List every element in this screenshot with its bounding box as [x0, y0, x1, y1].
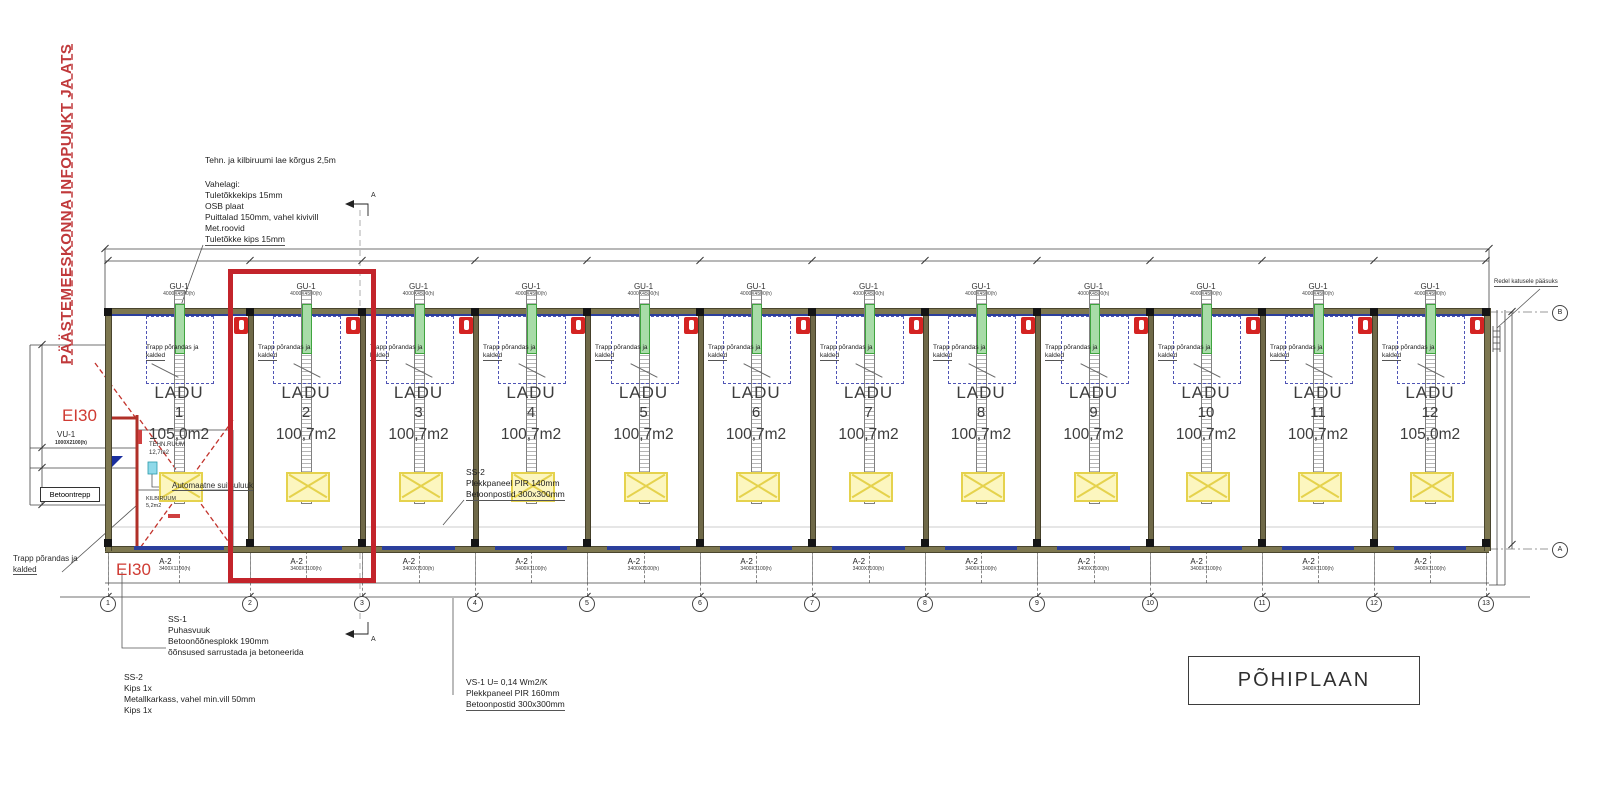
note-vs1-1: Plekkpaneel PIR 160mm — [466, 689, 560, 699]
floor-drain-note: Trapp põrandas ja kalded — [820, 344, 873, 361]
storage-unit-4: GU-1 4000X4500(h) Trapp põrandas ja kald… — [475, 280, 587, 583]
fire-extinguisher-icon — [571, 317, 585, 334]
window-label-a2: A-2 3400X1100(h) — [740, 557, 771, 572]
unit-number: 11 — [1262, 404, 1374, 421]
storage-unit-5: GU-1 4000X4500(h) Trapp põrandas ja kald… — [587, 280, 700, 583]
betoontrepp-label: Betoontrepp — [40, 487, 100, 502]
storage-unit-8: GU-1 4000X4500(h) Trapp põrandas ja kald… — [925, 280, 1037, 583]
unit-number: 7 — [812, 404, 925, 421]
smoke-hatch-icon — [1074, 472, 1118, 502]
note-vs1-2: Betoonpostid 300x300mm — [466, 700, 565, 711]
window-strip — [945, 546, 1017, 550]
kilbiruum-label: KILBIRUUM — [146, 496, 176, 502]
storage-unit-12: GU-1 4000X4500(h) Trapp põrandas ja kald… — [1374, 280, 1486, 583]
column-post — [1370, 308, 1378, 316]
unit-number: 3 — [362, 404, 475, 421]
note-vs1-0: VS-1 U= 0,14 Wm2/K — [466, 678, 548, 688]
window-label-a2: A-2 3400X1100(h) — [965, 557, 996, 572]
unit-name: LADU — [1150, 383, 1262, 403]
unit-number: 8 — [925, 404, 1037, 421]
storage-unit-3: GU-1 4000X4500(h) Trapp põrandas ja kald… — [362, 280, 475, 583]
unit-name: LADU — [700, 383, 812, 403]
fire-rating-ei30-bottom: EI30 — [116, 560, 151, 580]
smoke-hatch-icon — [1410, 472, 1454, 502]
column-post — [104, 539, 112, 547]
note-vahelagi-2: OSB plaat — [205, 202, 244, 212]
column-post — [1146, 308, 1154, 316]
window-strip — [1057, 546, 1129, 550]
tehn-ruum-area: 12,7m2 — [149, 450, 169, 457]
window-label-a2: A-2 3400X1100(h) — [1414, 557, 1445, 572]
window-label-a2: A-2 3400X1100(h) — [515, 557, 546, 572]
column-post — [104, 308, 112, 316]
unit-area: 100,7m2 — [1037, 426, 1150, 444]
storage-unit-7: GU-1 4000X4500(h) Trapp põrandas ja kald… — [812, 280, 925, 583]
section-mark-a-top: A — [371, 192, 376, 200]
note-ss1-0: SS-1 — [168, 615, 187, 625]
unit-area: 100,7m2 — [587, 426, 700, 444]
fire-rating-ei30-top: EI30 — [62, 406, 97, 426]
window-label-a2: A-2 3400X1100(h) — [1302, 557, 1333, 572]
fire-extinguisher-icon — [1134, 317, 1148, 334]
floor-drain-note: Trapp põrandas ja kalded — [1045, 344, 1098, 361]
fire-extinguisher-icon — [459, 317, 473, 334]
unit-name: LADU — [362, 383, 475, 403]
grid-bubble-11: 11 — [1254, 596, 1270, 612]
floor-drain-note: Trapp põrandas ja kalded — [1158, 344, 1211, 361]
column-post — [471, 308, 479, 316]
smoke-hatch-icon — [961, 472, 1005, 502]
note-vahelagi-0: Vahelagi: — [205, 180, 240, 190]
column-post — [1258, 539, 1266, 547]
unit-name: LADU — [1262, 383, 1374, 403]
column-post — [808, 539, 816, 547]
highlight-rectangle-unit2 — [228, 269, 376, 583]
column-post — [921, 308, 929, 316]
floor-drain-note: Trapp põrandas ja kalded — [146, 344, 199, 361]
fire-extinguisher-icon — [1470, 317, 1484, 334]
unit-area: 100,7m2 — [812, 426, 925, 444]
column-post — [921, 539, 929, 547]
grid-bubble-row-b: B — [1552, 305, 1568, 321]
rescue-team-infopoint-note: PÄÄSTEMEESKONNA INFOPUNKT JA ATS — [58, 34, 82, 374]
column-post — [808, 308, 816, 316]
unit-name: LADU — [1037, 383, 1150, 403]
column-post — [1482, 308, 1490, 316]
floor-drain-note: Trapp põrandas ja kalded — [933, 344, 986, 361]
floor-plan-canvas: PÄÄSTEMEESKONNA INFOPUNKT JA ATS Tehn. j… — [0, 0, 1611, 800]
column-post — [583, 308, 591, 316]
note-tech-ceiling: Tehn. ja kilbiruumi lae kõrgus 2,5m — [205, 156, 336, 166]
floor-drain-note: Trapp põrandas ja kalded — [595, 344, 648, 361]
grid-bubble-6: 6 — [692, 596, 708, 612]
unit-area: 100,7m2 — [362, 426, 475, 444]
fire-extinguisher-icon — [1358, 317, 1372, 334]
floor-drain-note: Trapp põrandas ja kalded — [708, 344, 761, 361]
window-label-a2: A-2 3400X1100(h) — [628, 557, 659, 572]
storage-unit-10: GU-1 4000X4500(h) Trapp põrandas ja kald… — [1150, 280, 1262, 583]
fire-extinguisher-icon — [909, 317, 923, 334]
tehn-ruum-label: TEHN.RUUM — [149, 442, 185, 449]
storage-unit-11: GU-1 4000X4500(h) Trapp põrandas ja kald… — [1262, 280, 1374, 583]
floor-drain-note: Trapp põrandas ja kalded — [483, 344, 536, 361]
window-label-a2: A-2 3400X1100(h) — [1190, 557, 1221, 572]
grid-bubble-9: 9 — [1029, 596, 1045, 612]
unit-name: LADU — [1374, 383, 1486, 403]
column-post — [1146, 539, 1154, 547]
trapp-outside-line2: kalded — [13, 565, 37, 575]
column-post — [1370, 539, 1378, 547]
floor-drain-note: Trapp põrandas ja kalded — [370, 344, 423, 361]
grid-bubble-12: 12 — [1366, 596, 1382, 612]
window-label-a2: A-2 3400X1100(h) — [853, 557, 884, 572]
drawing-title: PÕHIPLAAN — [1188, 656, 1420, 705]
grid-bubble-7: 7 — [804, 596, 820, 612]
door-size-vu1: 1000X2100(h) — [55, 441, 87, 447]
column-post — [583, 539, 591, 547]
fire-extinguisher-icon — [796, 317, 810, 334]
window-strip — [1394, 546, 1466, 550]
note-ss1-1: Puhasvuuk — [168, 626, 210, 636]
kilbiruum-area: 5,2m2 — [146, 503, 161, 509]
grid-bubble-3: 3 — [354, 596, 370, 612]
window-label-a2: A-2 3400X1100(h) — [1078, 557, 1109, 572]
note-vahelagi-5: Tuletõkke kips 15mm — [205, 235, 285, 246]
grid-bubble-4: 4 — [467, 596, 483, 612]
unit-area: 105,0m2 — [1374, 426, 1486, 444]
smoke-hatch-icon — [399, 472, 443, 502]
smoke-hatch-icon — [736, 472, 780, 502]
smoke-hatch-icon — [849, 472, 893, 502]
storage-unit-9: GU-1 4000X4500(h) Trapp põrandas ja kald… — [1037, 280, 1150, 583]
grid-bubble-8: 8 — [917, 596, 933, 612]
window-strip — [495, 546, 567, 550]
unit-name: LADU — [587, 383, 700, 403]
note-ss2-bottom-3: Kips 1x — [124, 706, 152, 716]
note-ss2-mid-0: SS-2 — [466, 468, 485, 478]
window-label-a2: A-2 3400X1100(h) — [159, 557, 190, 572]
window-strip — [382, 546, 454, 550]
grid-bubble-13: 13 — [1478, 596, 1494, 612]
window-strip — [1170, 546, 1242, 550]
unit-name: LADU — [812, 383, 925, 403]
floor-drain-note: Trapp põrandas ja kalded — [1382, 344, 1435, 361]
column-post — [696, 308, 704, 316]
note-vahelagi-3: Puittalad 150mm, vahel kivivill — [205, 213, 318, 223]
note-ss2-bottom-1: Kips 1x — [124, 684, 152, 694]
note-ss2-bottom-0: SS-2 — [124, 673, 143, 683]
grid-bubble-10: 10 — [1142, 596, 1158, 612]
smoke-hatch-icon — [624, 472, 668, 502]
note-ss1-3: õõnsused sarrustada ja betoneerida — [168, 648, 304, 658]
note-vahelagi-4: Met.roovid — [205, 224, 245, 234]
unit-area: 100,7m2 — [475, 426, 587, 444]
window-strip — [607, 546, 679, 550]
smoke-hatch-icon — [1298, 472, 1342, 502]
fire-extinguisher-icon — [1246, 317, 1260, 334]
note-vahelagi-1: Tuletõkkekips 15mm — [205, 191, 283, 201]
unit-number: 6 — [700, 404, 812, 421]
grid-bubble-row-a: A — [1552, 542, 1568, 558]
unit-area: 100,7m2 — [700, 426, 812, 444]
trapp-outside-line1: Trapp põrandas ja — [13, 554, 78, 563]
roof-ladder-note: Redel katusele pääsuks — [1494, 279, 1558, 287]
window-strip — [720, 546, 792, 550]
unit-name: LADU — [925, 383, 1037, 403]
unit-number: 9 — [1037, 404, 1150, 421]
note-ss2-bottom-2: Metallkarkass, vahel min.vill 50mm — [124, 695, 255, 705]
unit-number: 4 — [475, 404, 587, 421]
note-ss2-mid-1: Plekkpaneel PIR 140mm — [466, 479, 560, 489]
note-ss1-2: Betoonõõnesplokk 190mm — [168, 637, 269, 647]
column-post — [1482, 539, 1490, 547]
grid-bubble-2: 2 — [242, 596, 258, 612]
column-post — [471, 539, 479, 547]
unit-name: LADU — [475, 383, 587, 403]
storage-unit-6: GU-1 4000X4500(h) Trapp põrandas ja kald… — [700, 280, 812, 583]
unit-number: 12 — [1374, 404, 1486, 421]
window-label-a2: A-2 3400X1100(h) — [403, 557, 434, 572]
fire-extinguisher-icon — [684, 317, 698, 334]
window-strip — [832, 546, 904, 550]
column-post — [1033, 308, 1041, 316]
window-strip — [1282, 546, 1354, 550]
floor-drain-note: Trapp põrandas ja kalded — [1270, 344, 1323, 361]
column-post — [696, 539, 704, 547]
column-post — [1033, 539, 1041, 547]
unit-area: 100,7m2 — [1150, 426, 1262, 444]
window-strip — [134, 546, 225, 550]
door-label-vu1: VU-1 — [57, 430, 75, 439]
unit-area: 100,7m2 — [1262, 426, 1374, 444]
unit-area: 100,7m2 — [925, 426, 1037, 444]
unit-number: 5 — [587, 404, 700, 421]
section-mark-a-bottom: A — [371, 636, 376, 644]
unit-number: 10 — [1150, 404, 1262, 421]
smoke-hatch-icon — [1186, 472, 1230, 502]
note-ss2-mid-2: Betoonpostid 300x300mm — [466, 490, 565, 501]
grid-bubble-5: 5 — [579, 596, 595, 612]
column-post — [1258, 308, 1266, 316]
fire-extinguisher-icon — [1021, 317, 1035, 334]
grid-bubble-1: 1 — [100, 596, 116, 612]
